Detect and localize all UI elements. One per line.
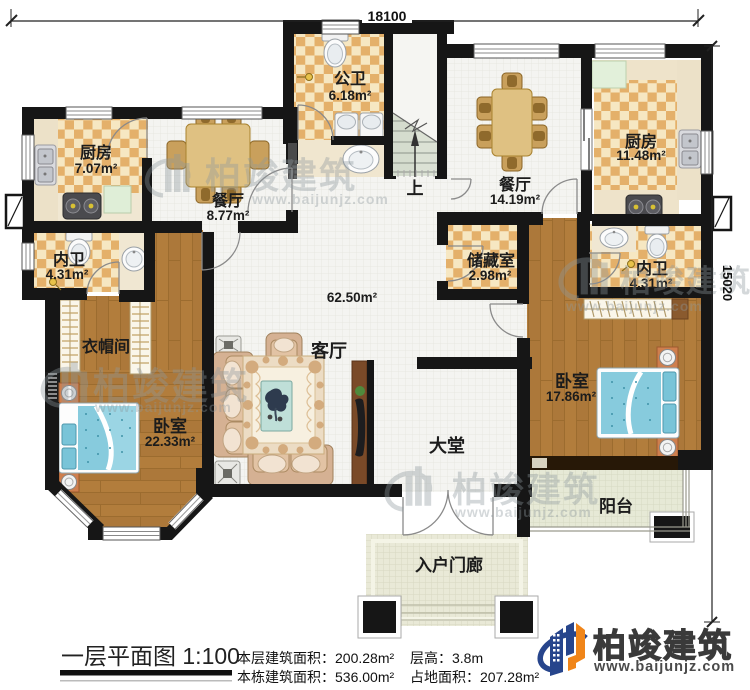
svg-text:客厅: 客厅	[311, 340, 347, 361]
svg-text:入户门廊: 入户门廊	[415, 555, 483, 575]
svg-text:www.baijunjz.com: www.baijunjz.com	[94, 399, 232, 415]
svg-text:一层平面图 1:100: 一层平面图 1:100	[61, 643, 240, 669]
svg-text:www.baijunjz.com: www.baijunjz.com	[454, 504, 592, 520]
svg-text:www.baijunjz.com: www.baijunjz.com	[593, 659, 735, 675]
svg-text:卧室: 卧室	[555, 371, 589, 391]
svg-text:www.baijunjz.com: www.baijunjz.com	[565, 298, 703, 314]
svg-text:卧室: 卧室	[153, 416, 187, 436]
svg-text:18100: 18100	[368, 8, 407, 24]
svg-text:阳台: 阳台	[599, 496, 633, 516]
svg-text:柏竣建筑: 柏竣建筑	[205, 155, 357, 196]
svg-text:22.33m²: 22.33m²	[145, 434, 196, 449]
svg-text:62.50m²: 62.50m²	[327, 290, 378, 305]
svg-text:本栋建筑面积：536.00m²: 本栋建筑面积：536.00m²	[237, 669, 394, 685]
svg-text:14.19m²: 14.19m²	[490, 192, 541, 207]
svg-text:www.baijunjz.com: www.baijunjz.com	[251, 191, 389, 207]
svg-text:4.31m²: 4.31m²	[46, 267, 89, 282]
svg-text:8.77m²: 8.77m²	[207, 208, 250, 223]
svg-text:11.48m²: 11.48m²	[616, 148, 666, 163]
svg-text:厨房: 厨房	[80, 143, 112, 162]
svg-text:衣帽间: 衣帽间	[82, 337, 130, 356]
svg-text:17.86m²: 17.86m²	[546, 389, 597, 404]
svg-text:占地面积：207.28m²: 占地面积：207.28m²	[410, 669, 539, 685]
svg-text:大堂: 大堂	[429, 435, 465, 456]
svg-text:6.18m²: 6.18m²	[329, 88, 372, 103]
svg-text:本层建筑面积：200.28m²: 本层建筑面积：200.28m²	[237, 650, 394, 666]
svg-text:7.07m²: 7.07m²	[75, 161, 118, 176]
svg-text:15020: 15020	[720, 265, 735, 301]
svg-text:公卫: 公卫	[334, 70, 366, 88]
svg-text:层高：3.8m: 层高：3.8m	[410, 650, 483, 666]
svg-text:上: 上	[407, 179, 424, 198]
svg-text:2.98m²: 2.98m²	[469, 268, 512, 283]
